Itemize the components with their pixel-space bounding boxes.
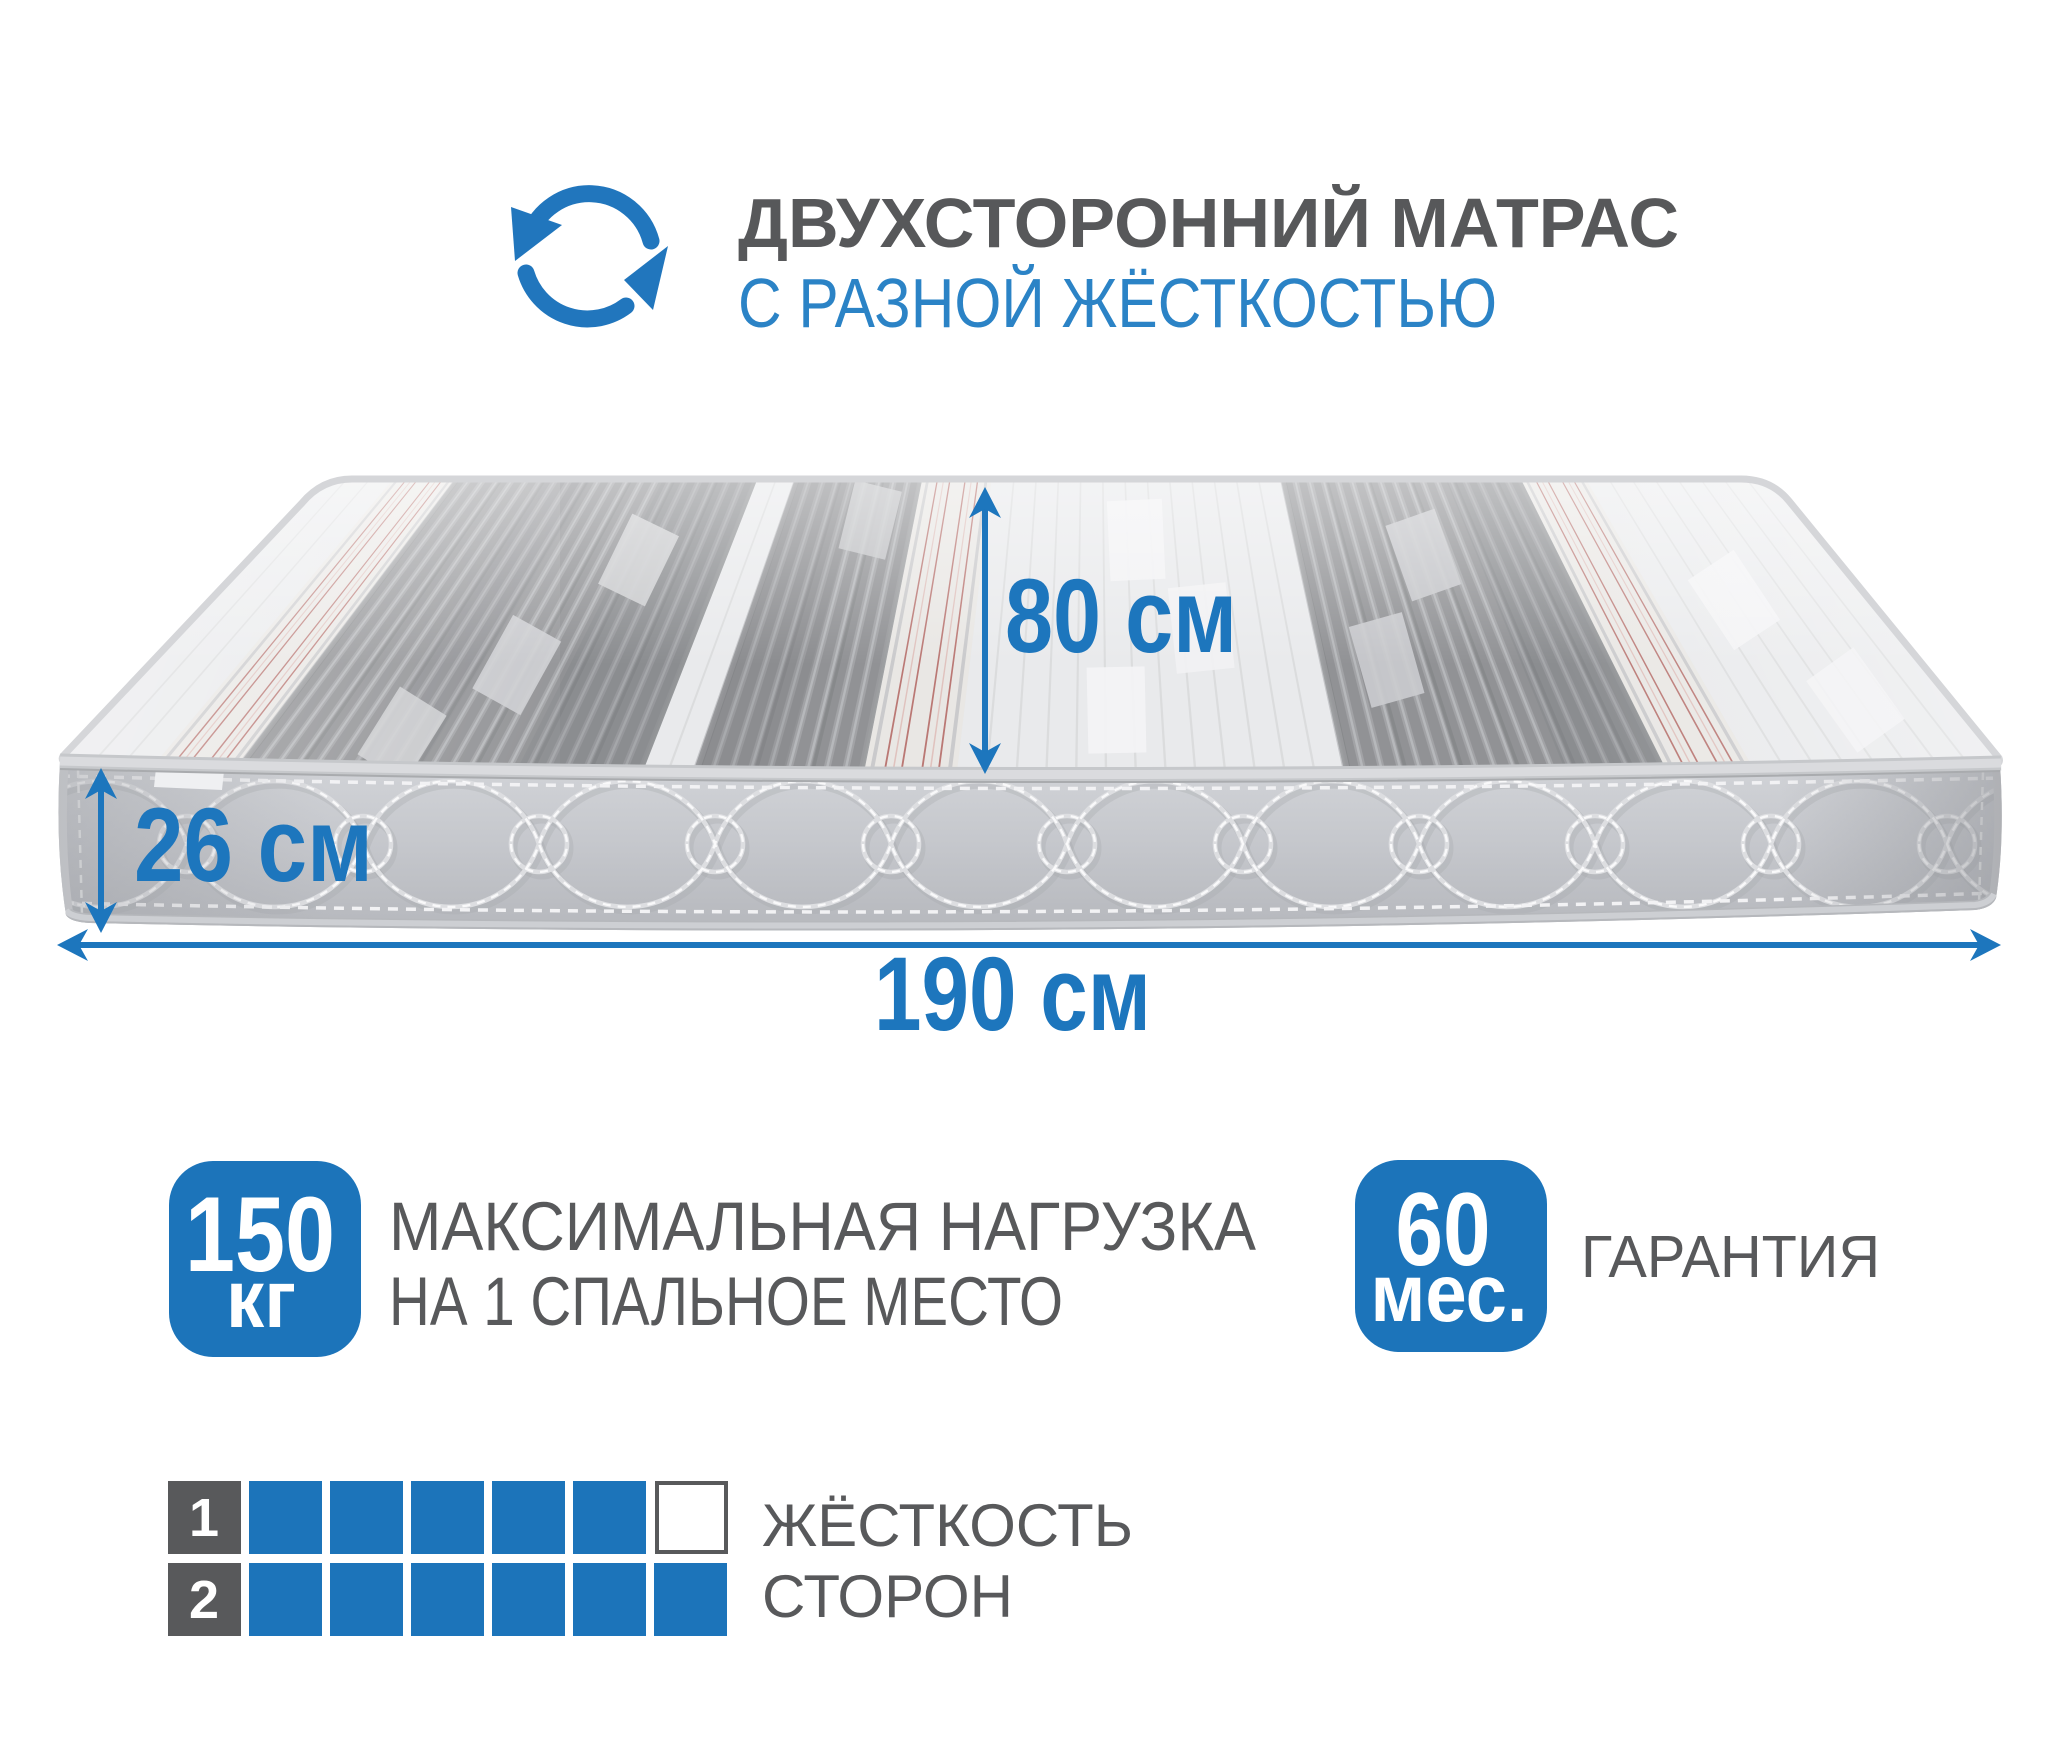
svg-text:ДВУХСТОРОННИЙ МАТРАС: ДВУХСТОРОННИЙ МАТРАС	[738, 183, 1679, 262]
svg-text:ГАРАНТИЯ: ГАРАНТИЯ	[1581, 1224, 1880, 1290]
svg-text:МАКСИМАЛЬНАЯ НАГРУЗКА: МАКСИМАЛЬНАЯ НАГРУЗКА	[389, 1188, 1256, 1265]
svg-text:1: 1	[189, 1488, 219, 1548]
svg-text:190 см: 190 см	[874, 936, 1151, 1053]
svg-text:С РАЗНОЙ ЖЁСТКОСТЬЮ: С РАЗНОЙ ЖЁСТКОСТЬЮ	[738, 263, 1497, 342]
svg-text:2: 2	[189, 1570, 219, 1630]
svg-text:НА 1 СПАЛЬНОЕ МЕСТО: НА 1 СПАЛЬНОЕ МЕСТО	[389, 1263, 1063, 1340]
svg-text:26 см: 26 см	[134, 787, 373, 904]
svg-text:мес.: мес.	[1371, 1248, 1528, 1339]
svg-text:80 см: 80 см	[1005, 558, 1237, 675]
svg-text:СТОРОН: СТОРОН	[762, 1563, 1013, 1630]
svg-text:ЖЁСТКОСТЬ: ЖЁСТКОСТЬ	[762, 1492, 1133, 1559]
svg-text:кг: кг	[226, 1254, 296, 1345]
